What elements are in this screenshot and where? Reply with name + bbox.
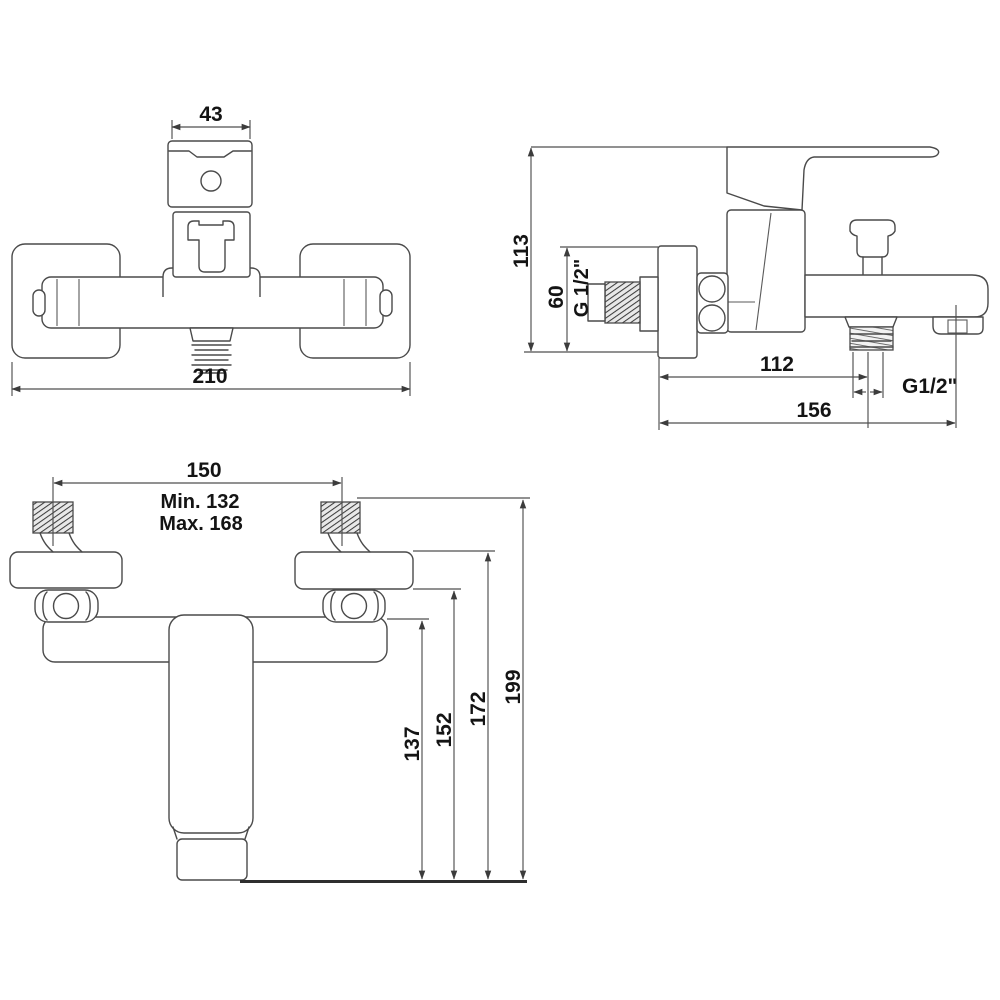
- installation-view: 150 Min. 132 Max. 168 137 152 172 199: [10, 459, 530, 882]
- dim-137-label: 137: [401, 726, 424, 761]
- spout-column: [169, 615, 253, 880]
- dim-113-label: 113: [510, 234, 533, 268]
- left-flange-install: [10, 552, 122, 588]
- front-view: 43 210: [12, 103, 410, 396]
- mixer-drawing-svg: 43 210: [0, 0, 1000, 1000]
- inlet-union-side: [588, 277, 658, 331]
- dim-overall-width: 210: [12, 362, 410, 396]
- right-flange-install: [295, 552, 413, 589]
- right-inlet-thread: [321, 502, 360, 533]
- side-view: 113 60 G 1/2" 112 G1/2" 156: [510, 147, 988, 430]
- outlet-thread-callout: G1/2": [853, 352, 957, 398]
- dim-height-137: 137: [387, 619, 429, 879]
- spout-tip: [177, 839, 247, 880]
- spout-side: [805, 275, 988, 317]
- outlet-thread-label: G1/2": [902, 375, 957, 398]
- dim-60-label: 60: [545, 285, 568, 308]
- spout-end-underside: [933, 317, 983, 334]
- right-inlet-pipe: [321, 502, 370, 552]
- min-centers-label: Min. 132: [161, 491, 240, 513]
- right-union-nut: [323, 590, 385, 622]
- lever-handle-side: [727, 147, 939, 210]
- dim-210-label: 210: [192, 365, 227, 388]
- dim-wall-to-outlet-112: 112: [659, 352, 868, 430]
- inlet-nuts-side: [697, 273, 728, 333]
- dim-43-label: 43: [199, 103, 222, 126]
- diverter-knob: [850, 220, 895, 275]
- technical-drawing-canvas: 43 210: [0, 0, 1000, 1000]
- dim-150-label: 150: [186, 459, 221, 482]
- dim-172-label: 172: [467, 691, 490, 726]
- spout-outlet-thread: [845, 317, 897, 350]
- dim-inlet-centers-150: 150 Min. 132 Max. 168: [53, 459, 342, 546]
- left-union-nut: [35, 590, 98, 622]
- left-inlet-pipe: [33, 502, 82, 552]
- max-centers-label: Max. 168: [159, 513, 242, 535]
- dim-112-label: 112: [760, 353, 794, 376]
- mixer-body-side: [727, 210, 805, 332]
- inlet-thread-label: G 1/2": [571, 259, 593, 317]
- dim-handle-width: 43: [172, 103, 250, 139]
- inlet-thread-hatched: [605, 282, 640, 323]
- dim-152-label: 152: [433, 712, 456, 747]
- dim-156-label: 156: [796, 399, 831, 422]
- wall-plate-side: [658, 246, 697, 358]
- dim-199-label: 199: [502, 669, 525, 704]
- handle-screw-hole: [201, 171, 221, 191]
